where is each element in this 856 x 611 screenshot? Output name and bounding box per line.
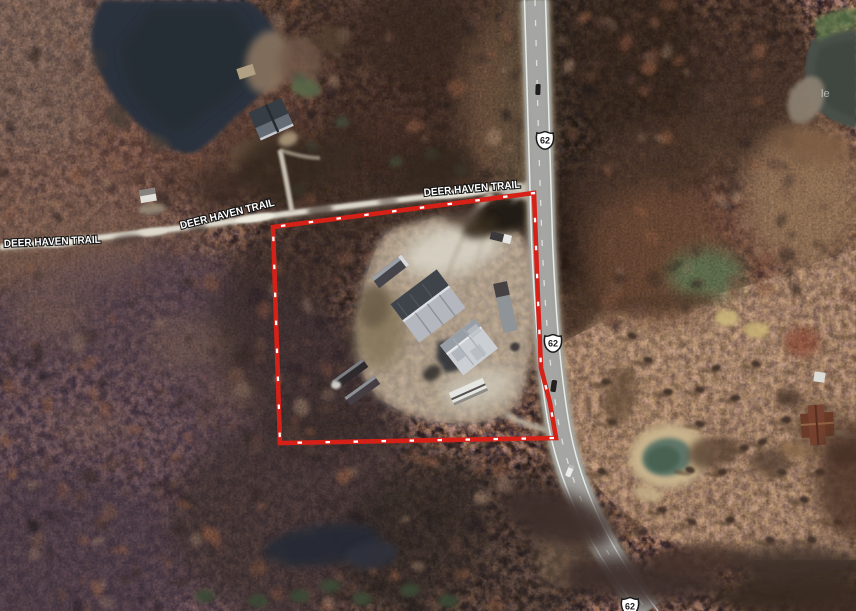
svg-text:62: 62	[548, 338, 558, 348]
svg-text:le: le	[821, 88, 830, 100]
svg-text:62: 62	[625, 601, 635, 611]
svg-text:62: 62	[540, 135, 550, 145]
